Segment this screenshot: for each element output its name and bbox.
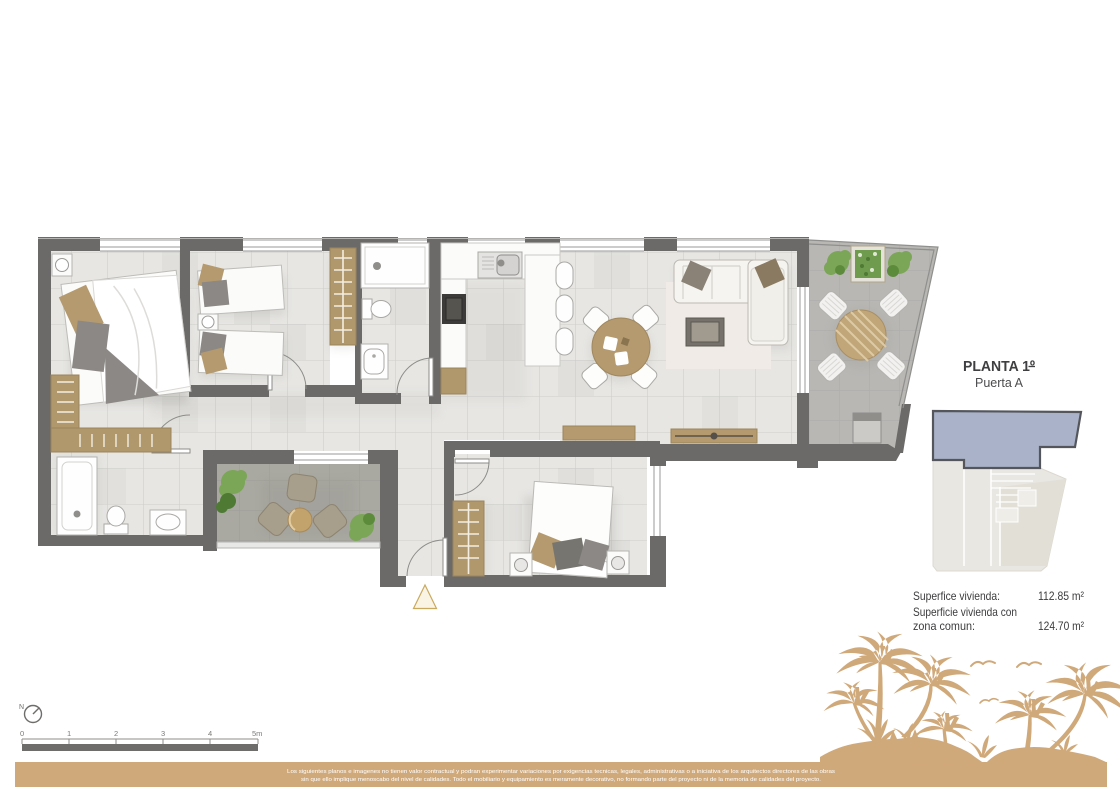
svg-text:112.85 m²: 112.85 m²	[1038, 589, 1084, 603]
svg-text:0: 0	[20, 729, 24, 738]
svg-text:N: N	[19, 704, 24, 711]
svg-text:Superficie vivienda con: Superficie vivienda con	[913, 605, 1017, 619]
svg-text:sin que ello implique menoscab: sin que ello implique menoscabo del nive…	[301, 777, 822, 783]
svg-text:5m: 5m	[252, 729, 262, 738]
svg-text:4: 4	[208, 729, 212, 738]
svg-text:zona comun:: zona comun:	[913, 619, 975, 633]
svg-text:Los siguientes planos e imagen: Los siguientes planos e imagenes no tien…	[287, 769, 835, 775]
svg-text:Puerta A: Puerta A	[975, 376, 1024, 390]
svg-text:3: 3	[161, 729, 165, 738]
svg-text:1: 1	[67, 729, 71, 738]
svg-text:124.70 m²: 124.70 m²	[1038, 619, 1084, 633]
svg-text:Superfice vivienda:: Superfice vivienda:	[913, 589, 1000, 603]
svg-text:PLANTA 1º: PLANTA 1º	[963, 358, 1035, 375]
svg-text:2: 2	[114, 729, 118, 738]
